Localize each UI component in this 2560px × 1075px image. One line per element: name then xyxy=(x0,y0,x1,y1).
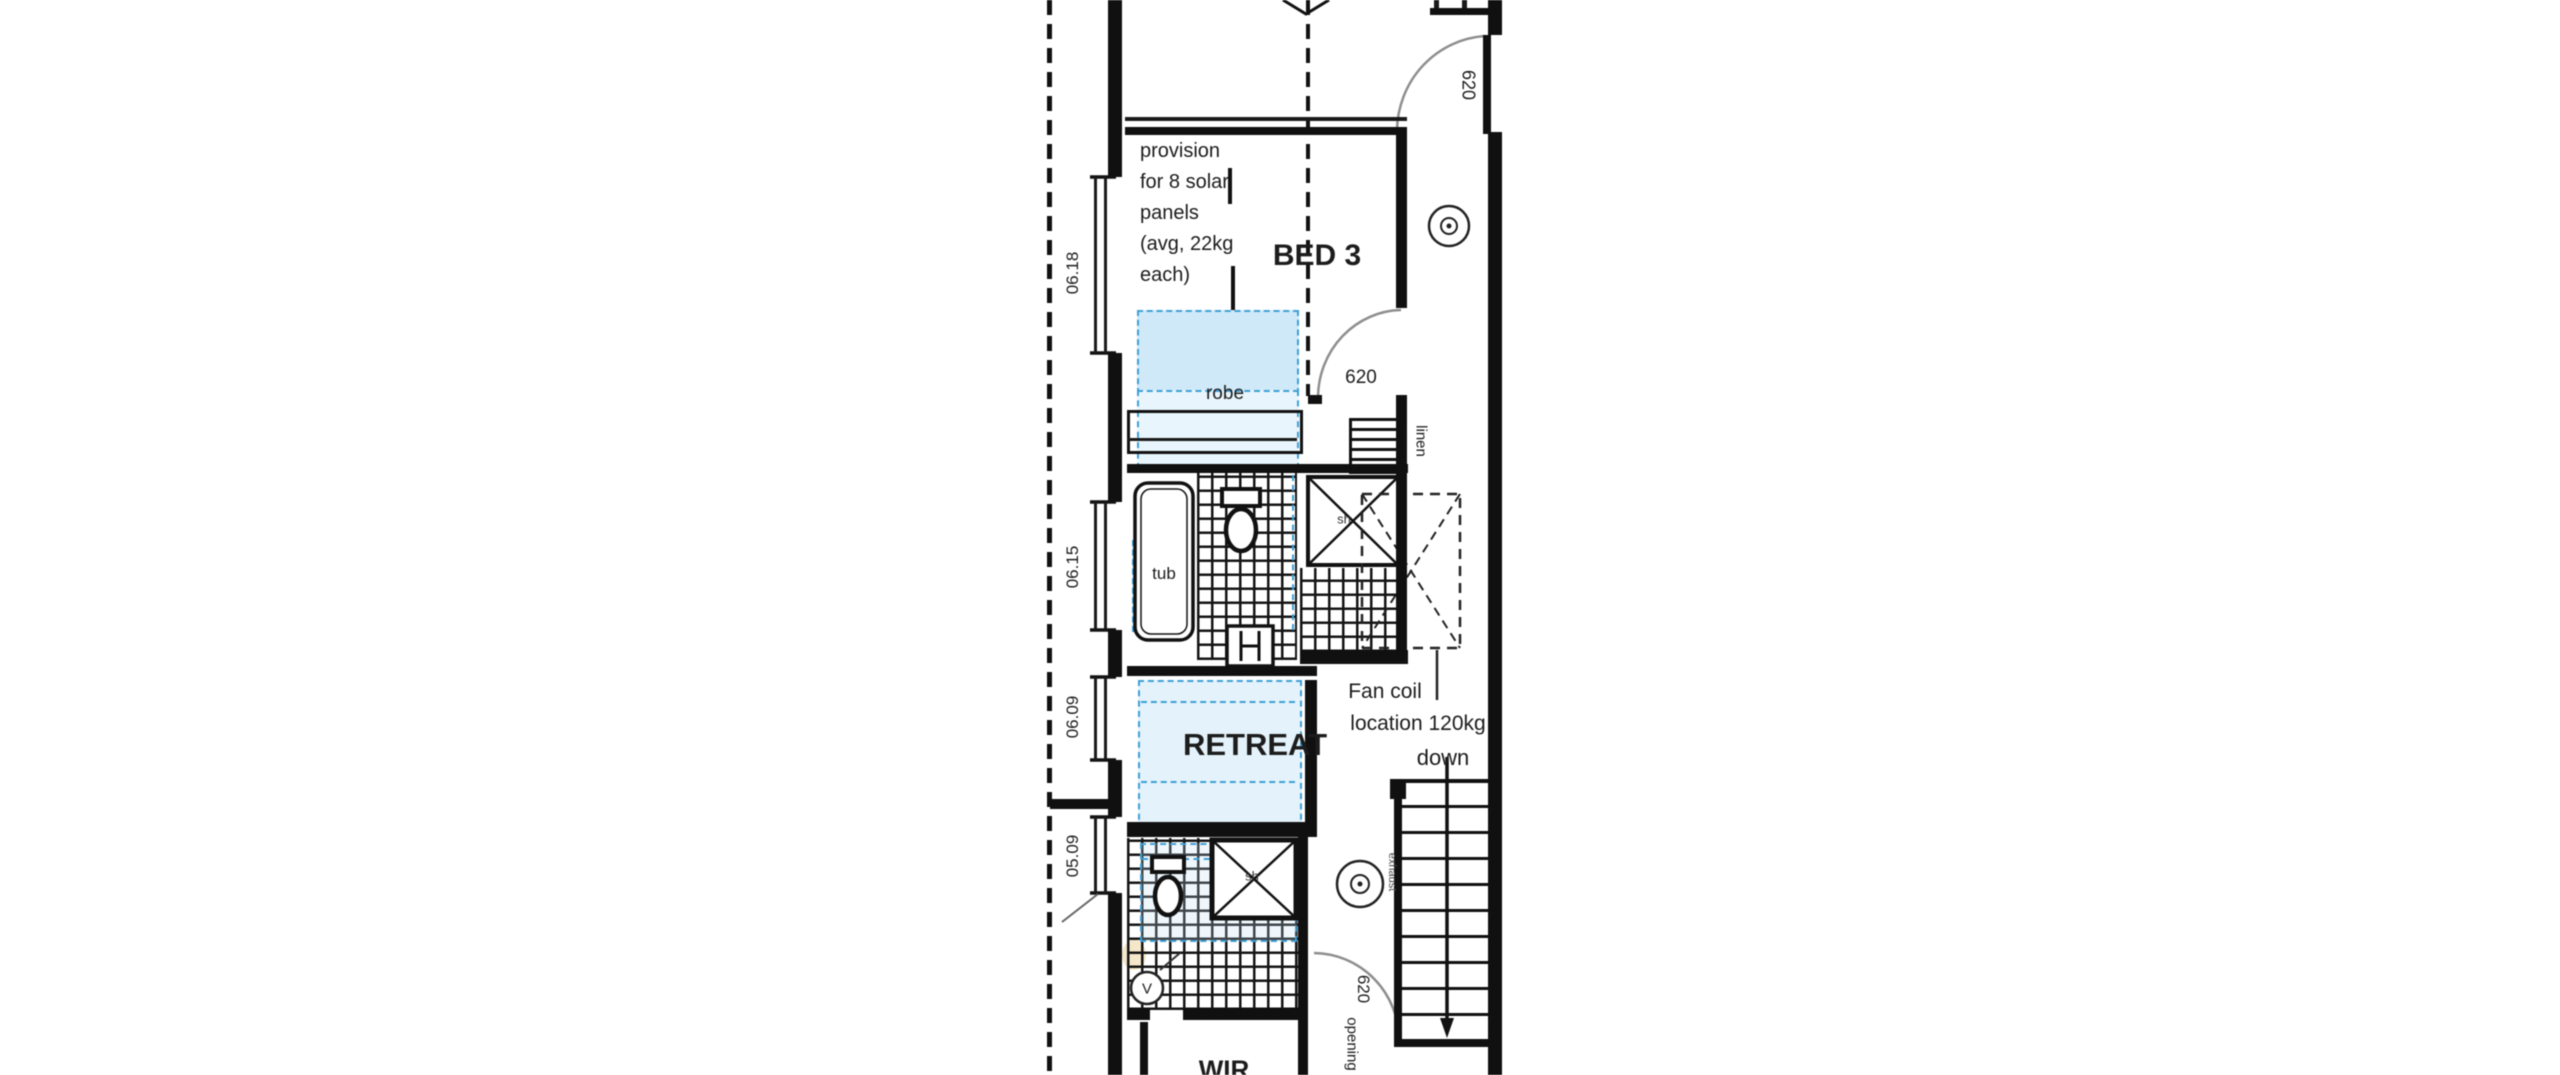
ensuite-toilet-bowl xyxy=(1155,877,1181,915)
robe-label: robe xyxy=(1206,383,1244,405)
right-wall xyxy=(1488,0,1502,35)
stair-arrow-head xyxy=(1440,1018,1454,1038)
stair-bottom-edge xyxy=(1394,1041,1502,1047)
left-wall xyxy=(1108,893,1122,1075)
door-leaf-top xyxy=(1483,35,1491,134)
window-frame xyxy=(1104,177,1107,353)
shower-label-1: sh xyxy=(1337,512,1351,527)
window-frame xyxy=(1094,677,1097,760)
retreat-bottom-wall xyxy=(1127,822,1317,837)
top-right-mullion xyxy=(1462,0,1467,8)
window-code-2: 06.15 xyxy=(1063,546,1083,589)
downlight-icon xyxy=(1447,224,1452,229)
window-frame xyxy=(1094,502,1097,630)
bathtub xyxy=(1135,483,1193,640)
left-wall xyxy=(1108,760,1122,817)
window-frame xyxy=(1104,817,1107,893)
note-line: each) xyxy=(1140,260,1233,291)
window-code-1: 06.18 xyxy=(1063,252,1083,295)
robe-door-wall xyxy=(1308,395,1322,404)
wir-inner-wall xyxy=(1140,1022,1148,1075)
left-wall xyxy=(1108,630,1122,677)
door-opening-label: opening xyxy=(1344,1017,1361,1070)
door-width-label-wir: 620 xyxy=(1353,975,1373,1003)
vent-symbol-letter: V xyxy=(1142,981,1152,998)
bathroom-bottom-wall-right xyxy=(1300,650,1408,664)
tub-label: tub xyxy=(1152,564,1176,584)
robe-unit xyxy=(1127,410,1303,454)
door-width-label-robe: 620 xyxy=(1345,367,1377,389)
stair-newel xyxy=(1390,779,1406,799)
solar-provision-note: provision for 8 solar panels (avg, 22kg … xyxy=(1140,136,1233,291)
window-frame xyxy=(1094,177,1097,353)
room-label-retreat: RETREAT xyxy=(1183,727,1327,763)
left-wall xyxy=(1108,353,1122,502)
note-line: for 8 solar xyxy=(1140,167,1233,198)
fixtures-overlay xyxy=(0,0,2560,1075)
ensuite-right-wall xyxy=(1298,836,1308,1075)
note-line: panels xyxy=(1140,198,1233,229)
robe-unit-rail xyxy=(1127,438,1297,441)
stair-top-edge xyxy=(1397,779,1488,783)
bed3-top-wall xyxy=(1125,127,1407,135)
stair-down-label: down xyxy=(1417,745,1470,771)
door-width-label-top: 620 xyxy=(1458,70,1479,100)
exhaust-fan-icon xyxy=(1358,882,1363,887)
ensuite-bottom-wall xyxy=(1127,1008,1150,1020)
right-wall xyxy=(1488,132,1502,1075)
fan-coil-label-line2: location 120kg xyxy=(1350,712,1485,736)
room-label-wir: WIR xyxy=(1199,1055,1250,1075)
exhaust-label: exhaust xyxy=(1386,853,1398,892)
left-wall xyxy=(1108,0,1122,177)
note-line: (avg, 22kg xyxy=(1140,229,1233,260)
ensuite-toilet-cistern xyxy=(1152,857,1184,872)
window-code-4: 05.09 xyxy=(1063,835,1083,878)
note-line: provision xyxy=(1140,136,1233,167)
window-frame xyxy=(1104,677,1107,760)
room-label-bed3: BED 3 xyxy=(1273,239,1361,273)
toilet-cistern xyxy=(1222,489,1260,506)
toilet-bowl xyxy=(1226,509,1256,551)
party-wall-nib xyxy=(1050,799,1110,809)
floor-plan-canvas: provision for 8 solar panels (avg, 22kg … xyxy=(0,0,2560,1075)
ensuite-bottom-wall xyxy=(1183,1008,1307,1020)
vent-leader-line xyxy=(1160,953,1180,970)
window-frame xyxy=(1104,502,1107,630)
top-right-wall xyxy=(1430,8,1502,15)
bed3-right-wall xyxy=(1396,130,1407,308)
shower-label-2: sh xyxy=(1245,869,1259,884)
top-right-mullion xyxy=(1434,0,1439,8)
window-frame xyxy=(1094,817,1097,893)
stair-left-wall xyxy=(1394,779,1402,1047)
bed3-top-wall-inner xyxy=(1125,117,1407,121)
window-code-3: 06.09 xyxy=(1063,696,1083,739)
bathroom-bottom-wall xyxy=(1127,666,1317,676)
linen-label: linen xyxy=(1413,425,1430,457)
bathroom-top-wall xyxy=(1127,464,1408,473)
fan-coil-label-line1: Fan coil xyxy=(1348,680,1422,704)
sill-leader-line xyxy=(1062,894,1098,922)
roof-apex-lines xyxy=(1283,0,1329,14)
